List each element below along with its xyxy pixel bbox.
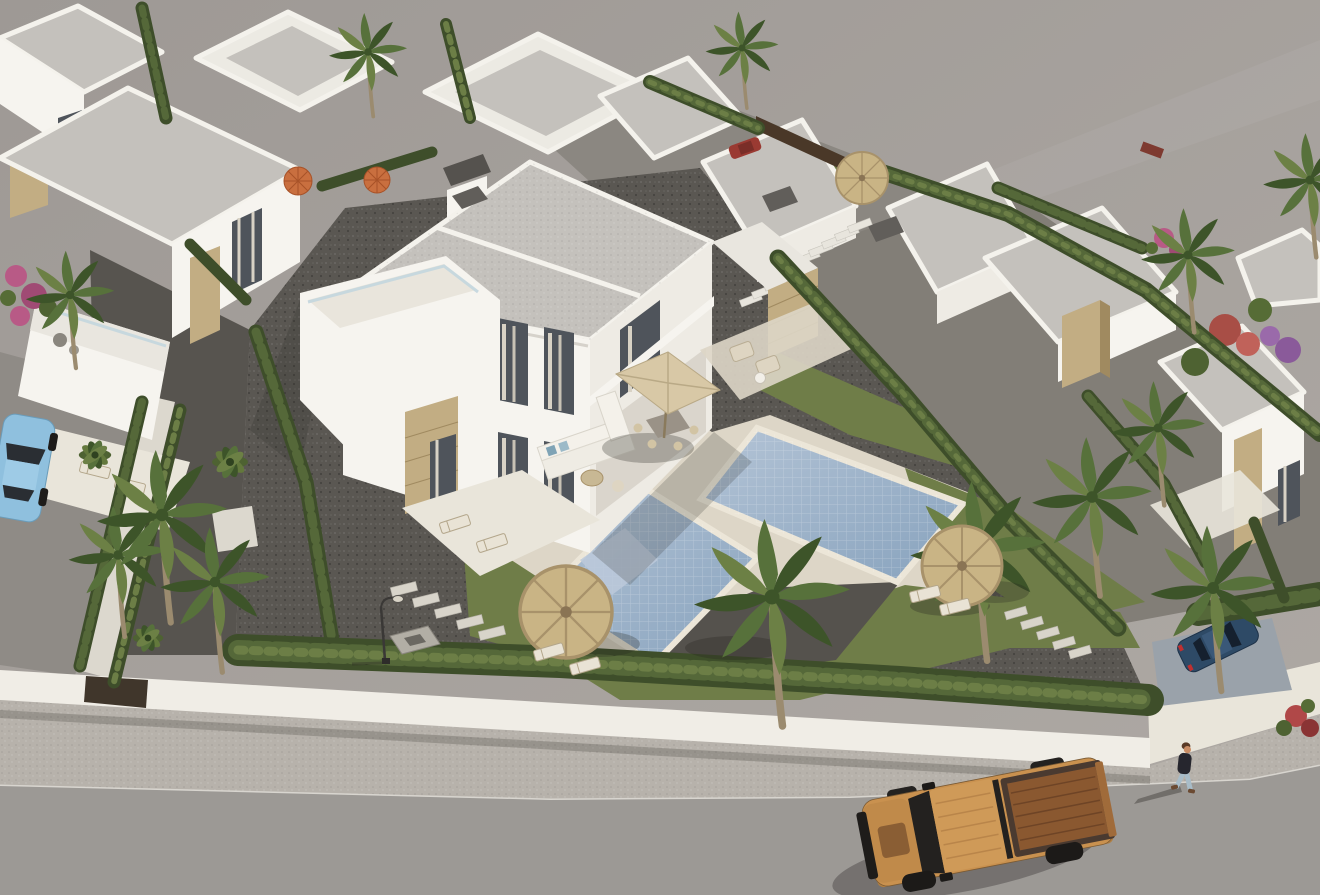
coffee-table <box>581 470 603 486</box>
hood-scoop <box>877 822 911 859</box>
garden-path-patch <box>212 506 258 552</box>
aerial-render <box>0 0 1320 895</box>
right-villa-window <box>1278 460 1300 526</box>
pedestrian-head <box>1184 746 1191 753</box>
straw-parasol <box>520 566 612 658</box>
pouf <box>612 480 624 492</box>
left-villa-window <box>232 208 262 294</box>
pedestrian-torso <box>1177 752 1192 774</box>
side-table <box>755 373 766 384</box>
lamp-head <box>393 596 404 603</box>
straw-parasol <box>836 152 888 204</box>
orange-parasol <box>364 167 390 193</box>
render-canvas <box>0 0 1320 895</box>
orange-parasol <box>284 167 312 195</box>
